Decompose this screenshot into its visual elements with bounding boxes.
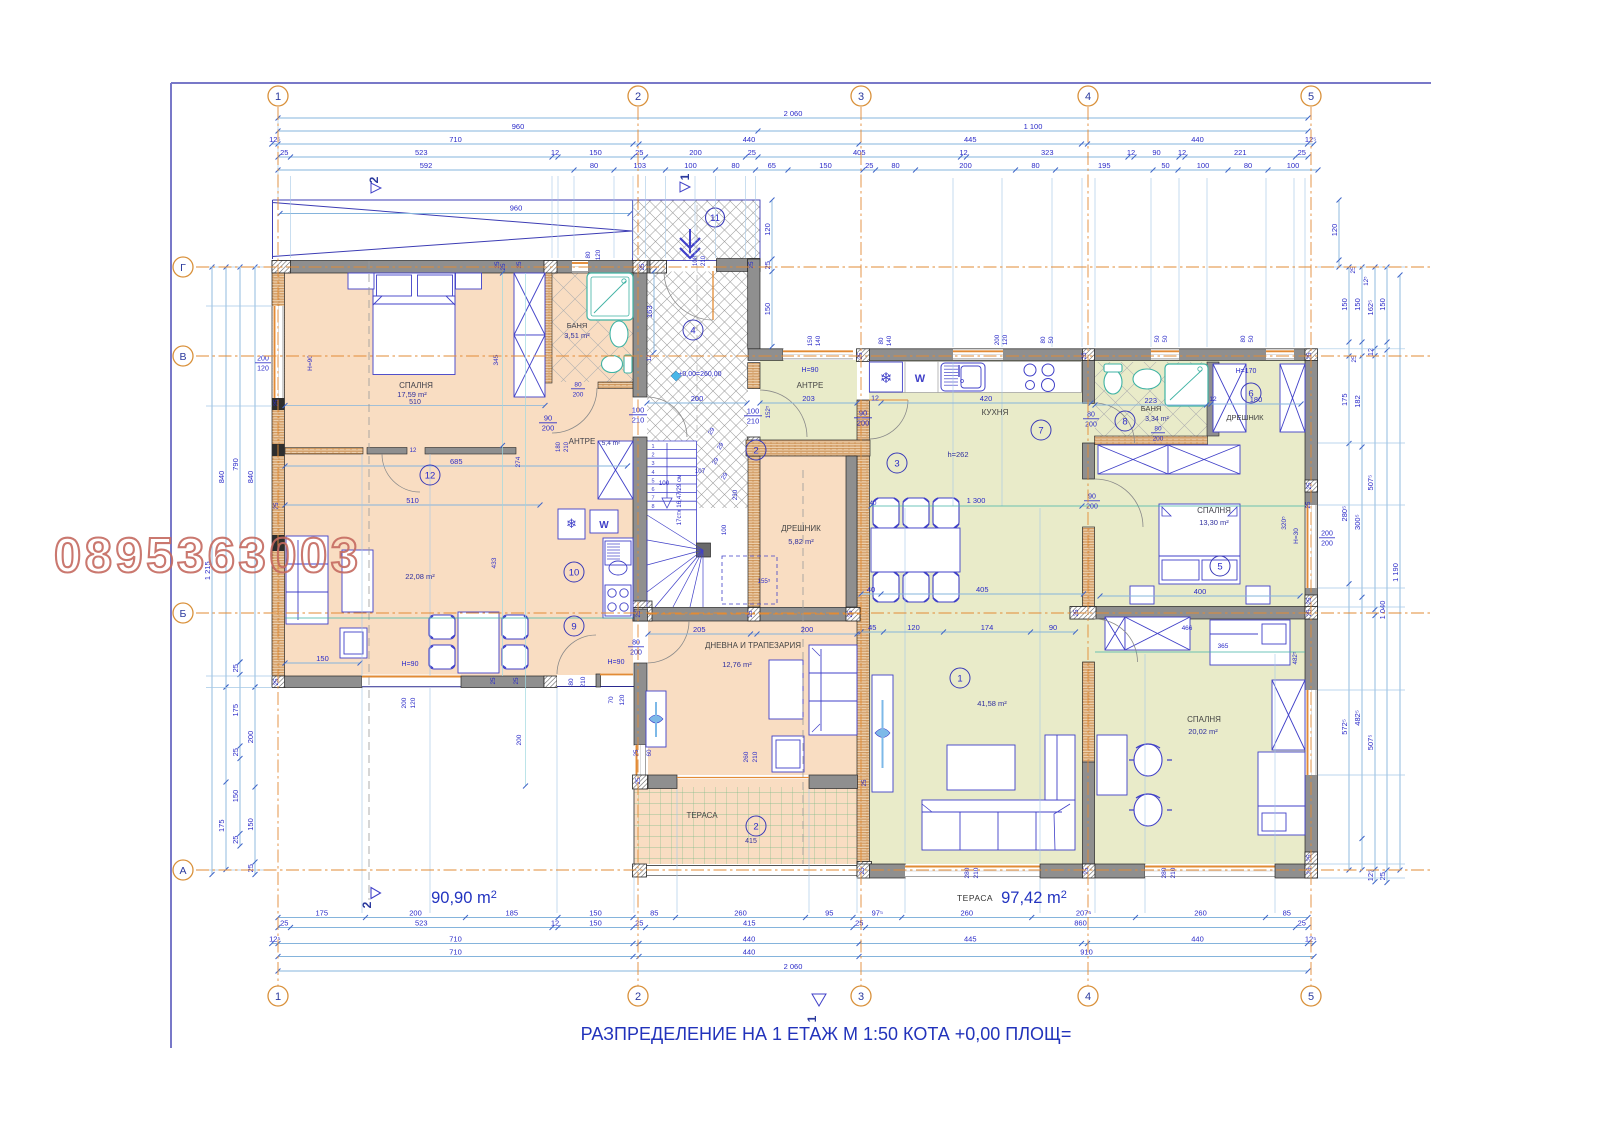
svg-text:80: 80: [1244, 161, 1252, 170]
svg-text:1: 1: [652, 444, 655, 450]
svg-text:100: 100: [747, 407, 760, 416]
svg-text:440: 440: [1191, 135, 1204, 144]
svg-text:280⁵: 280⁵: [1340, 506, 1349, 522]
svg-text:12,76 m²: 12,76 m²: [722, 660, 752, 669]
svg-text:12: 12: [646, 354, 653, 361]
svg-text:2 060: 2 060: [784, 962, 803, 971]
svg-text:200: 200: [857, 419, 870, 428]
svg-text:5,82 m²: 5,82 m²: [788, 537, 814, 546]
svg-text:25: 25: [246, 864, 255, 872]
svg-text:150: 150: [1340, 298, 1349, 311]
svg-text:200: 200: [1321, 541, 1333, 548]
svg-text:210: 210: [752, 751, 759, 762]
svg-text:12⁵: 12⁵: [269, 935, 280, 944]
svg-text:0895363003: 0895363003: [54, 529, 362, 583]
svg-text:25: 25: [1378, 872, 1387, 880]
svg-text:2: 2: [652, 453, 655, 459]
svg-text:1: 1: [275, 91, 281, 103]
svg-text:482⁵: 482⁵: [1292, 651, 1299, 664]
svg-text:200: 200: [542, 424, 555, 433]
svg-text:210: 210: [580, 676, 587, 687]
svg-text:АНТРЕ: АНТРЕ: [569, 437, 596, 446]
svg-text:4: 4: [690, 326, 695, 337]
svg-text:3: 3: [858, 991, 864, 1003]
svg-text:60: 60: [646, 749, 653, 757]
svg-text:140: 140: [815, 335, 822, 346]
svg-text:107: 107: [695, 468, 706, 475]
svg-text:25: 25: [273, 678, 280, 686]
svg-text:523: 523: [415, 148, 428, 157]
svg-text:150: 150: [1353, 298, 1362, 311]
svg-text:195: 195: [1098, 161, 1111, 170]
svg-text:80: 80: [590, 161, 598, 170]
svg-text:❄: ❄: [566, 516, 577, 531]
svg-text:25: 25: [635, 610, 642, 618]
svg-text:3,34 m²: 3,34 m²: [1145, 416, 1169, 423]
svg-text:25: 25: [1306, 597, 1313, 605]
svg-text:3: 3: [652, 461, 655, 467]
svg-text:445: 445: [964, 135, 977, 144]
svg-text:25: 25: [635, 148, 643, 157]
svg-text:12: 12: [410, 448, 417, 454]
svg-text:H=30: H=30: [1293, 528, 1300, 544]
svg-text:H=90: H=90: [402, 661, 419, 668]
svg-text:365: 365: [1218, 643, 1229, 650]
svg-text:150: 150: [589, 909, 602, 918]
svg-text:12: 12: [551, 919, 559, 928]
svg-text:12: 12: [871, 396, 879, 403]
svg-text:50: 50: [1154, 335, 1161, 342]
svg-text:685: 685: [450, 457, 463, 466]
svg-text:440: 440: [743, 135, 756, 144]
svg-text:25: 25: [273, 502, 280, 510]
svg-text:12⁵: 12⁵: [1363, 276, 1370, 286]
svg-text:6: 6: [1248, 389, 1253, 400]
svg-text:210: 210: [747, 417, 760, 426]
svg-text:150: 150: [807, 335, 814, 346]
svg-text:466: 466: [1182, 625, 1193, 632]
svg-text:205: 205: [693, 625, 706, 634]
svg-text:150: 150: [316, 654, 329, 663]
svg-text:22,08 m²: 22,08 m²: [405, 572, 435, 581]
svg-text:3,51 m²: 3,51 m²: [564, 331, 590, 340]
svg-text:572⁵: 572⁵: [1340, 719, 1349, 735]
svg-text:150: 150: [589, 148, 602, 157]
svg-text:2: 2: [753, 446, 758, 457]
svg-text:КУХНЯ: КУХНЯ: [982, 408, 1009, 417]
svg-text:300⁵: 300⁵: [1353, 514, 1362, 530]
svg-text:910: 910: [1080, 948, 1093, 957]
svg-text:25: 25: [1306, 854, 1313, 862]
svg-text:507⁵: 507⁵: [1366, 735, 1375, 751]
svg-text:80: 80: [1240, 335, 1247, 342]
svg-text:25: 25: [273, 399, 280, 407]
svg-text:5: 5: [1308, 991, 1314, 1003]
svg-text:1: 1: [275, 991, 281, 1003]
svg-text:50: 50: [1248, 335, 1255, 342]
svg-text:175: 175: [231, 704, 240, 717]
svg-text:25: 25: [855, 919, 863, 928]
svg-text:445: 445: [964, 935, 977, 944]
svg-text:9: 9: [571, 622, 576, 633]
svg-text:25: 25: [748, 148, 756, 157]
svg-text:120: 120: [907, 623, 920, 632]
svg-text:200: 200: [246, 731, 255, 744]
svg-text:25: 25: [280, 919, 288, 928]
svg-text:80: 80: [568, 678, 575, 686]
svg-text:40: 40: [867, 585, 875, 594]
svg-text:840: 840: [217, 471, 226, 484]
svg-text:120: 120: [1330, 224, 1339, 237]
svg-text:45: 45: [868, 623, 876, 632]
svg-text:5: 5: [652, 478, 655, 484]
svg-text:4: 4: [1085, 91, 1091, 103]
svg-text:25: 25: [1298, 919, 1306, 928]
svg-text:200: 200: [1321, 531, 1333, 538]
svg-text:840: 840: [246, 471, 255, 484]
svg-text:10: 10: [569, 568, 580, 579]
svg-text:6: 6: [652, 487, 655, 493]
svg-text:120: 120: [619, 694, 626, 705]
svg-text:17,59 m²: 17,59 m²: [397, 390, 427, 399]
svg-text:ДРЕШНИК: ДРЕШНИК: [1226, 413, 1264, 422]
svg-text:h=262: h=262: [947, 450, 968, 459]
svg-text:90: 90: [1049, 623, 1057, 632]
svg-text:25: 25: [635, 919, 643, 928]
svg-text:592: 592: [420, 161, 433, 170]
svg-text:H=90: H=90: [608, 659, 625, 666]
svg-text:200: 200: [1085, 422, 1097, 429]
svg-text:80: 80: [891, 161, 899, 170]
svg-text:1 300: 1 300: [967, 496, 986, 505]
svg-text:120: 120: [595, 249, 602, 260]
svg-text:200: 200: [573, 392, 584, 399]
svg-text:180: 180: [556, 441, 562, 452]
svg-text:20,02 m²: 20,02 m²: [1188, 727, 1218, 736]
svg-text:182: 182: [1353, 395, 1362, 408]
svg-text:100: 100: [693, 255, 699, 266]
svg-text:140: 140: [886, 335, 893, 346]
svg-text:221: 221: [1234, 148, 1247, 157]
svg-text:25: 25: [861, 779, 868, 787]
svg-text:523: 523: [415, 919, 428, 928]
svg-text:25: 25: [490, 677, 497, 685]
svg-text:W: W: [915, 373, 926, 385]
svg-text:507⁵: 507⁵: [1366, 475, 1375, 491]
svg-text:405: 405: [853, 148, 866, 157]
svg-text:50: 50: [1162, 335, 1169, 342]
svg-text:103: 103: [633, 161, 646, 170]
svg-text:±0,00=260,00: ±0,00=260,00: [679, 371, 722, 378]
svg-text:200: 200: [691, 394, 704, 403]
svg-text:960: 960: [510, 204, 523, 213]
svg-text:4: 4: [1085, 991, 1091, 1003]
svg-text:152⁵: 152⁵: [765, 405, 772, 418]
svg-text:70: 70: [608, 696, 615, 704]
svg-text:440: 440: [743, 935, 756, 944]
svg-text:4: 4: [652, 470, 655, 476]
svg-text:25: 25: [635, 777, 642, 785]
svg-text:1 040: 1 040: [1378, 601, 1387, 620]
svg-text:97,42 m2: 97,42 m2: [1001, 889, 1067, 907]
svg-text:85: 85: [1283, 909, 1291, 918]
svg-text:150: 150: [763, 303, 772, 316]
svg-text:H=90: H=90: [802, 367, 819, 374]
svg-text:2: 2: [635, 91, 641, 103]
svg-text:80: 80: [585, 251, 592, 258]
svg-text:25: 25: [513, 677, 520, 685]
svg-text:12⁵: 12⁵: [269, 135, 280, 144]
svg-text:860: 860: [1074, 919, 1087, 928]
svg-text:150: 150: [589, 919, 602, 928]
svg-text:25: 25: [1083, 867, 1090, 875]
svg-text:W: W: [599, 520, 609, 531]
svg-text:210: 210: [973, 867, 980, 878]
svg-text:274: 274: [515, 456, 522, 467]
svg-text:163: 163: [645, 305, 654, 318]
svg-text:710: 710: [449, 135, 462, 144]
svg-text:280: 280: [1161, 867, 1168, 878]
svg-text:7: 7: [1038, 426, 1043, 437]
svg-text:175: 175: [315, 909, 328, 918]
svg-text:25: 25: [747, 610, 754, 618]
svg-text:482⁵: 482⁵: [1353, 710, 1362, 726]
svg-text:150: 150: [1378, 298, 1387, 311]
svg-text:1 100: 1 100: [1024, 122, 1043, 131]
svg-text:СПАЛНЯ: СПАЛНЯ: [1197, 506, 1231, 515]
svg-text:12: 12: [959, 148, 967, 157]
svg-text:40: 40: [870, 500, 877, 507]
svg-text:510: 510: [409, 399, 421, 406]
svg-text:150: 150: [246, 818, 255, 831]
svg-text:25: 25: [1306, 867, 1313, 875]
svg-text:100: 100: [659, 480, 670, 487]
svg-text:260: 260: [743, 751, 750, 762]
svg-text:БАНЯ: БАНЯ: [567, 321, 588, 330]
svg-text:5: 5: [1308, 91, 1314, 103]
svg-text:12: 12: [1178, 148, 1186, 157]
svg-text:420: 420: [980, 394, 993, 403]
svg-text:207⁵: 207⁵: [1076, 909, 1092, 918]
svg-text:100: 100: [1197, 161, 1210, 170]
svg-text:12⁵: 12⁵: [1366, 870, 1375, 881]
svg-text:В: В: [179, 351, 186, 363]
svg-text:3: 3: [858, 91, 864, 103]
svg-text:12: 12: [425, 471, 436, 482]
svg-text:25: 25: [847, 610, 854, 618]
svg-text:200: 200: [516, 734, 523, 745]
svg-text:203: 203: [802, 394, 815, 403]
svg-text:5: 5: [1217, 562, 1222, 573]
svg-text:80: 80: [1031, 161, 1039, 170]
svg-text:90,90 m2: 90,90 m2: [431, 889, 497, 907]
svg-text:А: А: [179, 865, 186, 877]
svg-text:200: 200: [409, 909, 422, 918]
svg-text:2: 2: [635, 991, 641, 1003]
svg-text:95: 95: [825, 909, 833, 918]
svg-text:200: 200: [689, 148, 702, 157]
svg-text:25: 25: [231, 664, 240, 672]
svg-text:230: 230: [732, 489, 739, 500]
svg-text:155⁵: 155⁵: [758, 578, 771, 585]
svg-text:440: 440: [1191, 935, 1204, 944]
svg-text:400: 400: [1194, 587, 1207, 596]
svg-text:960: 960: [512, 122, 525, 131]
svg-text:25: 25: [865, 161, 873, 170]
svg-text:25: 25: [633, 749, 640, 757]
svg-text:200: 200: [630, 650, 642, 657]
svg-text:162⁵: 162⁵: [1366, 300, 1375, 316]
svg-text:120: 120: [257, 366, 269, 373]
svg-text:80: 80: [574, 382, 582, 389]
svg-text:8: 8: [1122, 417, 1127, 428]
svg-text:1: 1: [805, 1015, 819, 1022]
svg-text:120: 120: [410, 697, 417, 708]
svg-text:H=170: H=170: [1236, 368, 1257, 375]
svg-text:ТЕРАСА: ТЕРАСА: [686, 811, 718, 820]
svg-text:ДРЕШНИК: ДРЕШНИК: [781, 524, 821, 533]
svg-text:H=90: H=90: [307, 355, 314, 371]
svg-text:1: 1: [678, 173, 692, 180]
svg-text:90: 90: [1088, 494, 1096, 501]
svg-text:65: 65: [768, 161, 776, 170]
svg-text:СПАЛНЯ: СПАЛНЯ: [399, 381, 433, 390]
svg-text:100: 100: [721, 524, 728, 535]
svg-text:ТЕРАСА: ТЕРАСА: [957, 893, 993, 903]
svg-text:80: 80: [1040, 336, 1047, 343]
svg-text:200: 200: [257, 356, 269, 363]
svg-text:405: 405: [976, 585, 989, 594]
svg-text:АНТРЕ: АНТРЕ: [797, 381, 824, 390]
svg-text:80: 80: [731, 161, 739, 170]
svg-text:415: 415: [743, 919, 756, 928]
svg-text:260: 260: [734, 909, 747, 918]
svg-text:12: 12: [1127, 148, 1135, 157]
svg-text:85: 85: [650, 909, 658, 918]
svg-text:8: 8: [652, 504, 655, 510]
svg-text:710: 710: [449, 948, 462, 957]
svg-text:80: 80: [1154, 426, 1162, 433]
svg-text:150: 150: [819, 161, 832, 170]
svg-text:210: 210: [701, 255, 707, 266]
svg-text:50: 50: [1048, 336, 1055, 343]
svg-text:ДНЕВНА И ТРАПЕЗАРИЯ: ДНЕВНА И ТРАПЕЗАРИЯ: [705, 641, 801, 650]
svg-text:90: 90: [859, 409, 867, 418]
svg-text:Г: Г: [180, 262, 186, 274]
svg-text:25: 25: [280, 148, 288, 157]
svg-text:25: 25: [1298, 148, 1306, 157]
svg-text:90: 90: [1152, 148, 1160, 157]
svg-text:150: 150: [231, 790, 240, 803]
svg-text:260: 260: [1194, 909, 1207, 918]
svg-text:120: 120: [1002, 334, 1009, 345]
svg-text:25: 25: [231, 748, 240, 756]
svg-text:200: 200: [801, 625, 814, 634]
svg-text:1 190: 1 190: [1391, 563, 1400, 582]
svg-text:80: 80: [878, 337, 885, 344]
svg-text:710: 710: [449, 935, 462, 944]
svg-text:433: 433: [491, 557, 498, 568]
svg-text:❄: ❄: [880, 370, 893, 387]
svg-text:13,30 m²: 13,30 m²: [1199, 518, 1229, 527]
svg-text:Б: Б: [180, 608, 187, 620]
svg-text:7: 7: [652, 496, 655, 502]
svg-text:90: 90: [544, 414, 552, 423]
svg-text:РАЗПРЕДЕЛЕНИЕ НА 1 ЕТАЖ М 1:5: РАЗПРЕДЕЛЕНИЕ НА 1 ЕТАЖ М 1:50 КОТА +0,0…: [581, 1024, 1072, 1044]
svg-text:1: 1: [957, 674, 962, 685]
svg-text:11: 11: [710, 213, 720, 224]
svg-text:25: 25: [1306, 482, 1313, 490]
svg-text:СПАЛНЯ: СПАЛНЯ: [1187, 715, 1221, 724]
svg-text:2 060: 2 060: [784, 109, 803, 118]
svg-text:200: 200: [401, 697, 408, 708]
svg-text:260: 260: [960, 909, 973, 918]
svg-text:12: 12: [551, 148, 559, 157]
svg-text:5,4 m²: 5,4 m²: [602, 440, 621, 447]
svg-text:3: 3: [894, 459, 899, 470]
svg-text:200: 200: [1153, 436, 1164, 443]
svg-text:510: 510: [406, 496, 419, 505]
svg-text:100: 100: [684, 161, 697, 170]
svg-text:97⁵: 97⁵: [872, 909, 883, 918]
svg-text:440: 440: [743, 948, 756, 957]
svg-text:185: 185: [505, 909, 518, 918]
svg-text:210: 210: [1170, 867, 1177, 878]
svg-text:175: 175: [217, 819, 226, 832]
svg-text:2: 2: [360, 901, 374, 908]
svg-text:323: 323: [1041, 148, 1054, 157]
svg-text:120: 120: [763, 223, 772, 236]
svg-text:100: 100: [1287, 161, 1300, 170]
svg-text:320⁵: 320⁵: [1281, 516, 1288, 530]
svg-text:2: 2: [367, 176, 381, 183]
svg-text:415: 415: [745, 838, 757, 845]
svg-text:25: 25: [763, 261, 772, 269]
svg-text:25: 25: [231, 836, 240, 844]
svg-text:80: 80: [632, 640, 640, 647]
svg-text:2: 2: [753, 822, 758, 833]
svg-text:25: 25: [859, 867, 866, 875]
svg-text:50: 50: [1161, 161, 1169, 170]
svg-text:200: 200: [959, 161, 972, 170]
svg-text:17стx 16,47/29 см: 17стx 16,47/29 см: [676, 475, 683, 526]
svg-text:175: 175: [1340, 393, 1349, 406]
svg-text:БАНЯ: БАНЯ: [1141, 404, 1162, 413]
svg-text:280: 280: [964, 867, 971, 878]
svg-text:790: 790: [231, 458, 240, 471]
svg-text:174: 174: [981, 623, 994, 632]
svg-text:200: 200: [994, 334, 1001, 345]
svg-text:41,58 m²: 41,58 m²: [977, 699, 1007, 708]
